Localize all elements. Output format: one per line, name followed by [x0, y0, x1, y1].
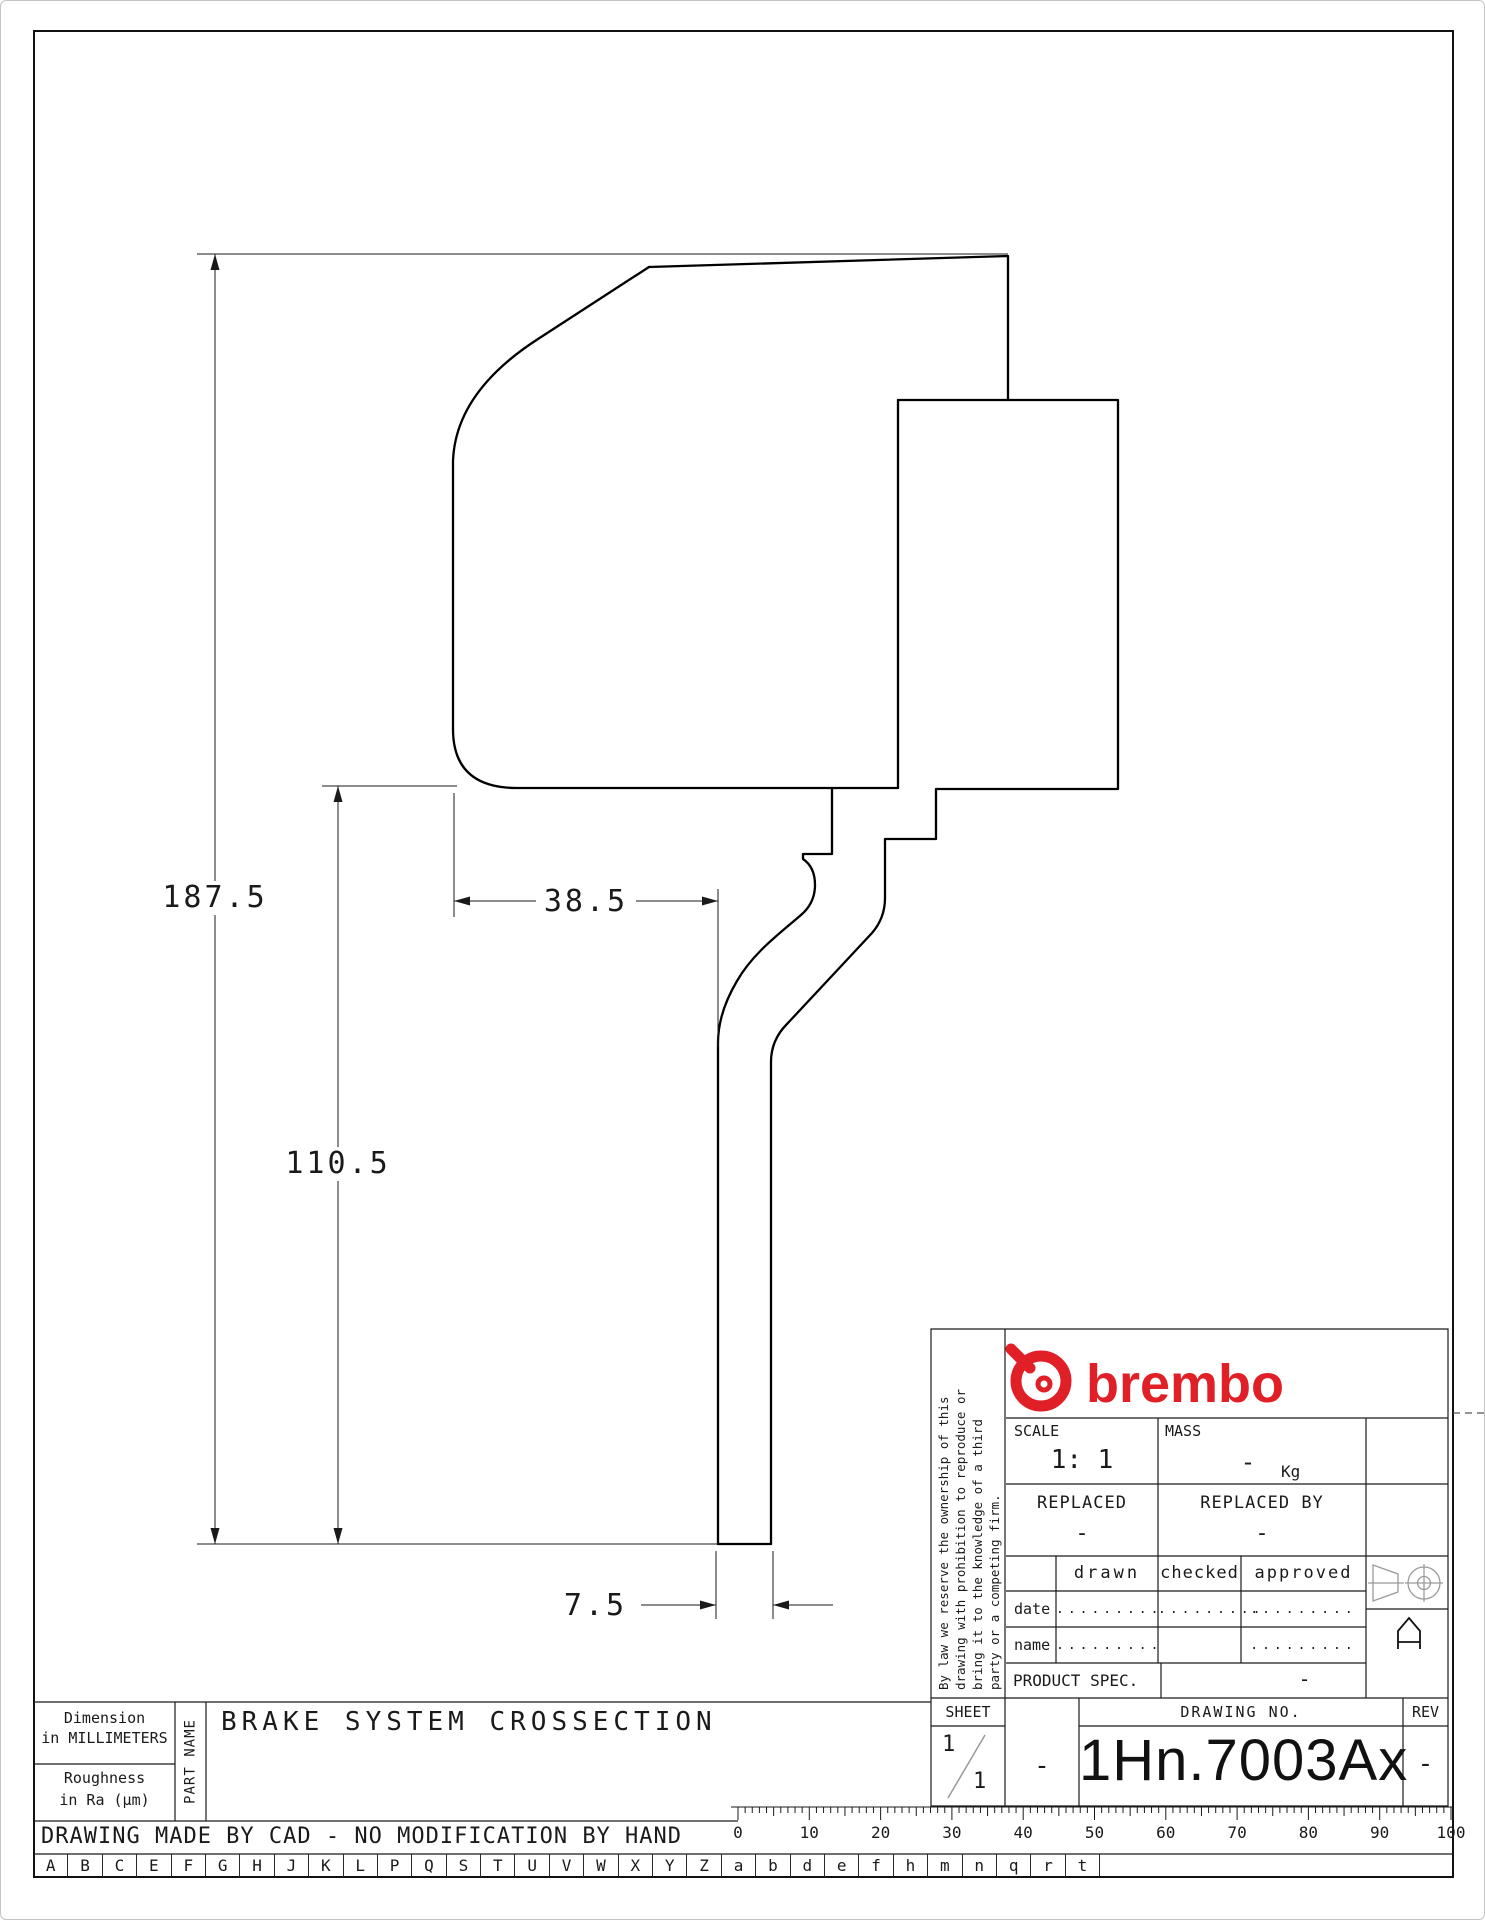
drawing-no-value: 1Hn.7003Ax	[1079, 1727, 1403, 1794]
rev-label: REV	[1403, 1703, 1448, 1721]
drawing-sheet: 187.5 110.5 38.5 7.5 By law we reserve t…	[0, 0, 1485, 1920]
roughness-note-line1: Roughness	[34, 1769, 175, 1787]
disclaimer-line: drawing with prohibition to reproduce or	[952, 1329, 969, 1690]
sheet-label: SHEET	[931, 1703, 1005, 1721]
ruler-number: 20	[851, 1823, 911, 1842]
legal-disclaimer-text: By law we reserve the ownership of thisd…	[931, 1329, 1006, 1698]
letter-cell: e	[825, 1854, 859, 1877]
col-approved: approved	[1241, 1563, 1366, 1583]
col-drawn: drawn	[1056, 1563, 1158, 1583]
col-checked: checked	[1158, 1563, 1241, 1583]
disclaimer-line: bring it to the knowledge of a third	[969, 1329, 986, 1690]
date-approved-dots: .........	[1241, 1602, 1366, 1617]
mass-unit: Kg	[1281, 1462, 1300, 1481]
dimension-note-line1: Dimension	[34, 1709, 175, 1727]
name-row-label: name	[1014, 1636, 1050, 1654]
letter-cell: Q	[412, 1854, 446, 1877]
sheet-total: 1	[973, 1769, 986, 1794]
letter-cell: G	[206, 1854, 240, 1877]
sheet-number: 1	[942, 1732, 955, 1757]
letter-cell: a	[722, 1854, 756, 1877]
ruler-ticks	[738, 1807, 1451, 1820]
ruler-number: 50	[1065, 1823, 1125, 1842]
letter-cell: U	[515, 1854, 549, 1877]
dim-disc-thickness: 7.5	[553, 1589, 638, 1623]
dim-total-height: 187.5	[155, 881, 275, 915]
product-spec-label: PRODUCT SPEC.	[1013, 1671, 1138, 1690]
letter-cell: m	[928, 1854, 962, 1877]
letter-cell: F	[172, 1854, 206, 1877]
replaced-by-value: -	[1158, 1521, 1366, 1546]
letter-cell: t	[1066, 1854, 1100, 1877]
letter-cell: h	[894, 1854, 928, 1877]
part-title: BRAKE SYSTEM CROSSECTION	[221, 1707, 717, 1737]
ruler-number: 70	[1207, 1823, 1267, 1842]
letter-cell: W	[584, 1854, 618, 1877]
letter-cell: Y	[653, 1854, 687, 1877]
brembo-logo-icon	[1011, 1349, 1066, 1406]
letter-cell: q	[997, 1854, 1031, 1877]
scale-ruler	[731, 1807, 1453, 1820]
ruler-number: 0	[708, 1823, 768, 1842]
dimension-arrows	[211, 254, 790, 1610]
scale-value: 1: 1	[1006, 1445, 1158, 1475]
replaced-label: REPLACED	[1006, 1493, 1158, 1513]
letter-cell: r	[1031, 1854, 1065, 1877]
letter-cell: T	[481, 1854, 515, 1877]
letter-cell: H	[240, 1854, 274, 1877]
disclaimer-line: party or a competing firm.	[986, 1329, 1003, 1690]
letter-cell: K	[309, 1854, 343, 1877]
roughness-note-line2: in Ra (µm)	[34, 1791, 175, 1809]
letter-cell: A	[34, 1854, 68, 1877]
ruler-number: 40	[993, 1823, 1053, 1842]
letter-cell: V	[550, 1854, 584, 1877]
replaced-value: -	[1006, 1521, 1158, 1546]
letter-cell: B	[68, 1854, 102, 1877]
dimension-note-line2: in MILLIMETERS	[34, 1729, 175, 1747]
cad-linework	[1, 1, 1485, 1920]
date-drawn-dots: .........	[1056, 1602, 1158, 1617]
ruler-number: 100	[1421, 1823, 1481, 1842]
dimension-lines	[197, 254, 1008, 1619]
ruler-number: 60	[1136, 1823, 1196, 1842]
rev-value: -	[1403, 1749, 1448, 1779]
letter-cell: S	[447, 1854, 481, 1877]
letter-cell: E	[137, 1854, 171, 1877]
brembo-wordmark: brembo	[1086, 1353, 1284, 1415]
letter-cell: J	[275, 1854, 309, 1877]
sheet-border	[34, 31, 1453, 1877]
cad-note: DRAWING MADE BY CAD - NO MODIFICATION BY…	[41, 1824, 682, 1849]
disclaimer-line: By law we reserve the ownership of this	[935, 1329, 952, 1690]
ruler-number: 10	[779, 1823, 839, 1842]
ruler-number: 30	[922, 1823, 982, 1842]
part-name-label: PART NAME	[177, 1702, 206, 1822]
projection-symbol-icon	[1368, 1564, 1443, 1602]
letter-cell: P	[378, 1854, 412, 1877]
letter-cell: L	[344, 1854, 378, 1877]
name-approved-dots: .........	[1241, 1638, 1366, 1653]
date-row-label: date	[1014, 1600, 1050, 1618]
product-spec-value: -	[1161, 1667, 1448, 1691]
letter-cell: X	[619, 1854, 653, 1877]
paper-size-symbol-icon	[1398, 1618, 1420, 1649]
mass-value: -	[1158, 1448, 1338, 1476]
letter-cell: f	[859, 1854, 893, 1877]
letter-cell: Z	[687, 1854, 721, 1877]
scale-label: SCALE	[1014, 1422, 1059, 1440]
dim-body-height: 110.5	[278, 1147, 398, 1181]
drawing-no-label: DRAWING NO.	[1079, 1703, 1403, 1721]
legal-disclaimer: By law we reserve the ownership of thisd…	[931, 1329, 1006, 1698]
ruler-number: 90	[1350, 1823, 1410, 1842]
ruler-number: 80	[1278, 1823, 1338, 1842]
mass-label: MASS	[1165, 1422, 1201, 1440]
letter-cell: C	[103, 1854, 137, 1877]
letter-cell: b	[756, 1854, 790, 1877]
dash-cell: -	[1005, 1751, 1079, 1781]
revision-letter-strip: ABCEFGHJKLPQSTUVWXYZabdefhmnqrt	[34, 1854, 1100, 1877]
name-drawn-dots: .........	[1056, 1638, 1158, 1653]
letter-cell: n	[963, 1854, 997, 1877]
dim-body-width: 38.5	[536, 885, 636, 919]
replaced-by-label: REPLACED BY	[1158, 1493, 1366, 1513]
letter-cell: d	[791, 1854, 825, 1877]
date-checked-dots: .........	[1158, 1602, 1241, 1617]
